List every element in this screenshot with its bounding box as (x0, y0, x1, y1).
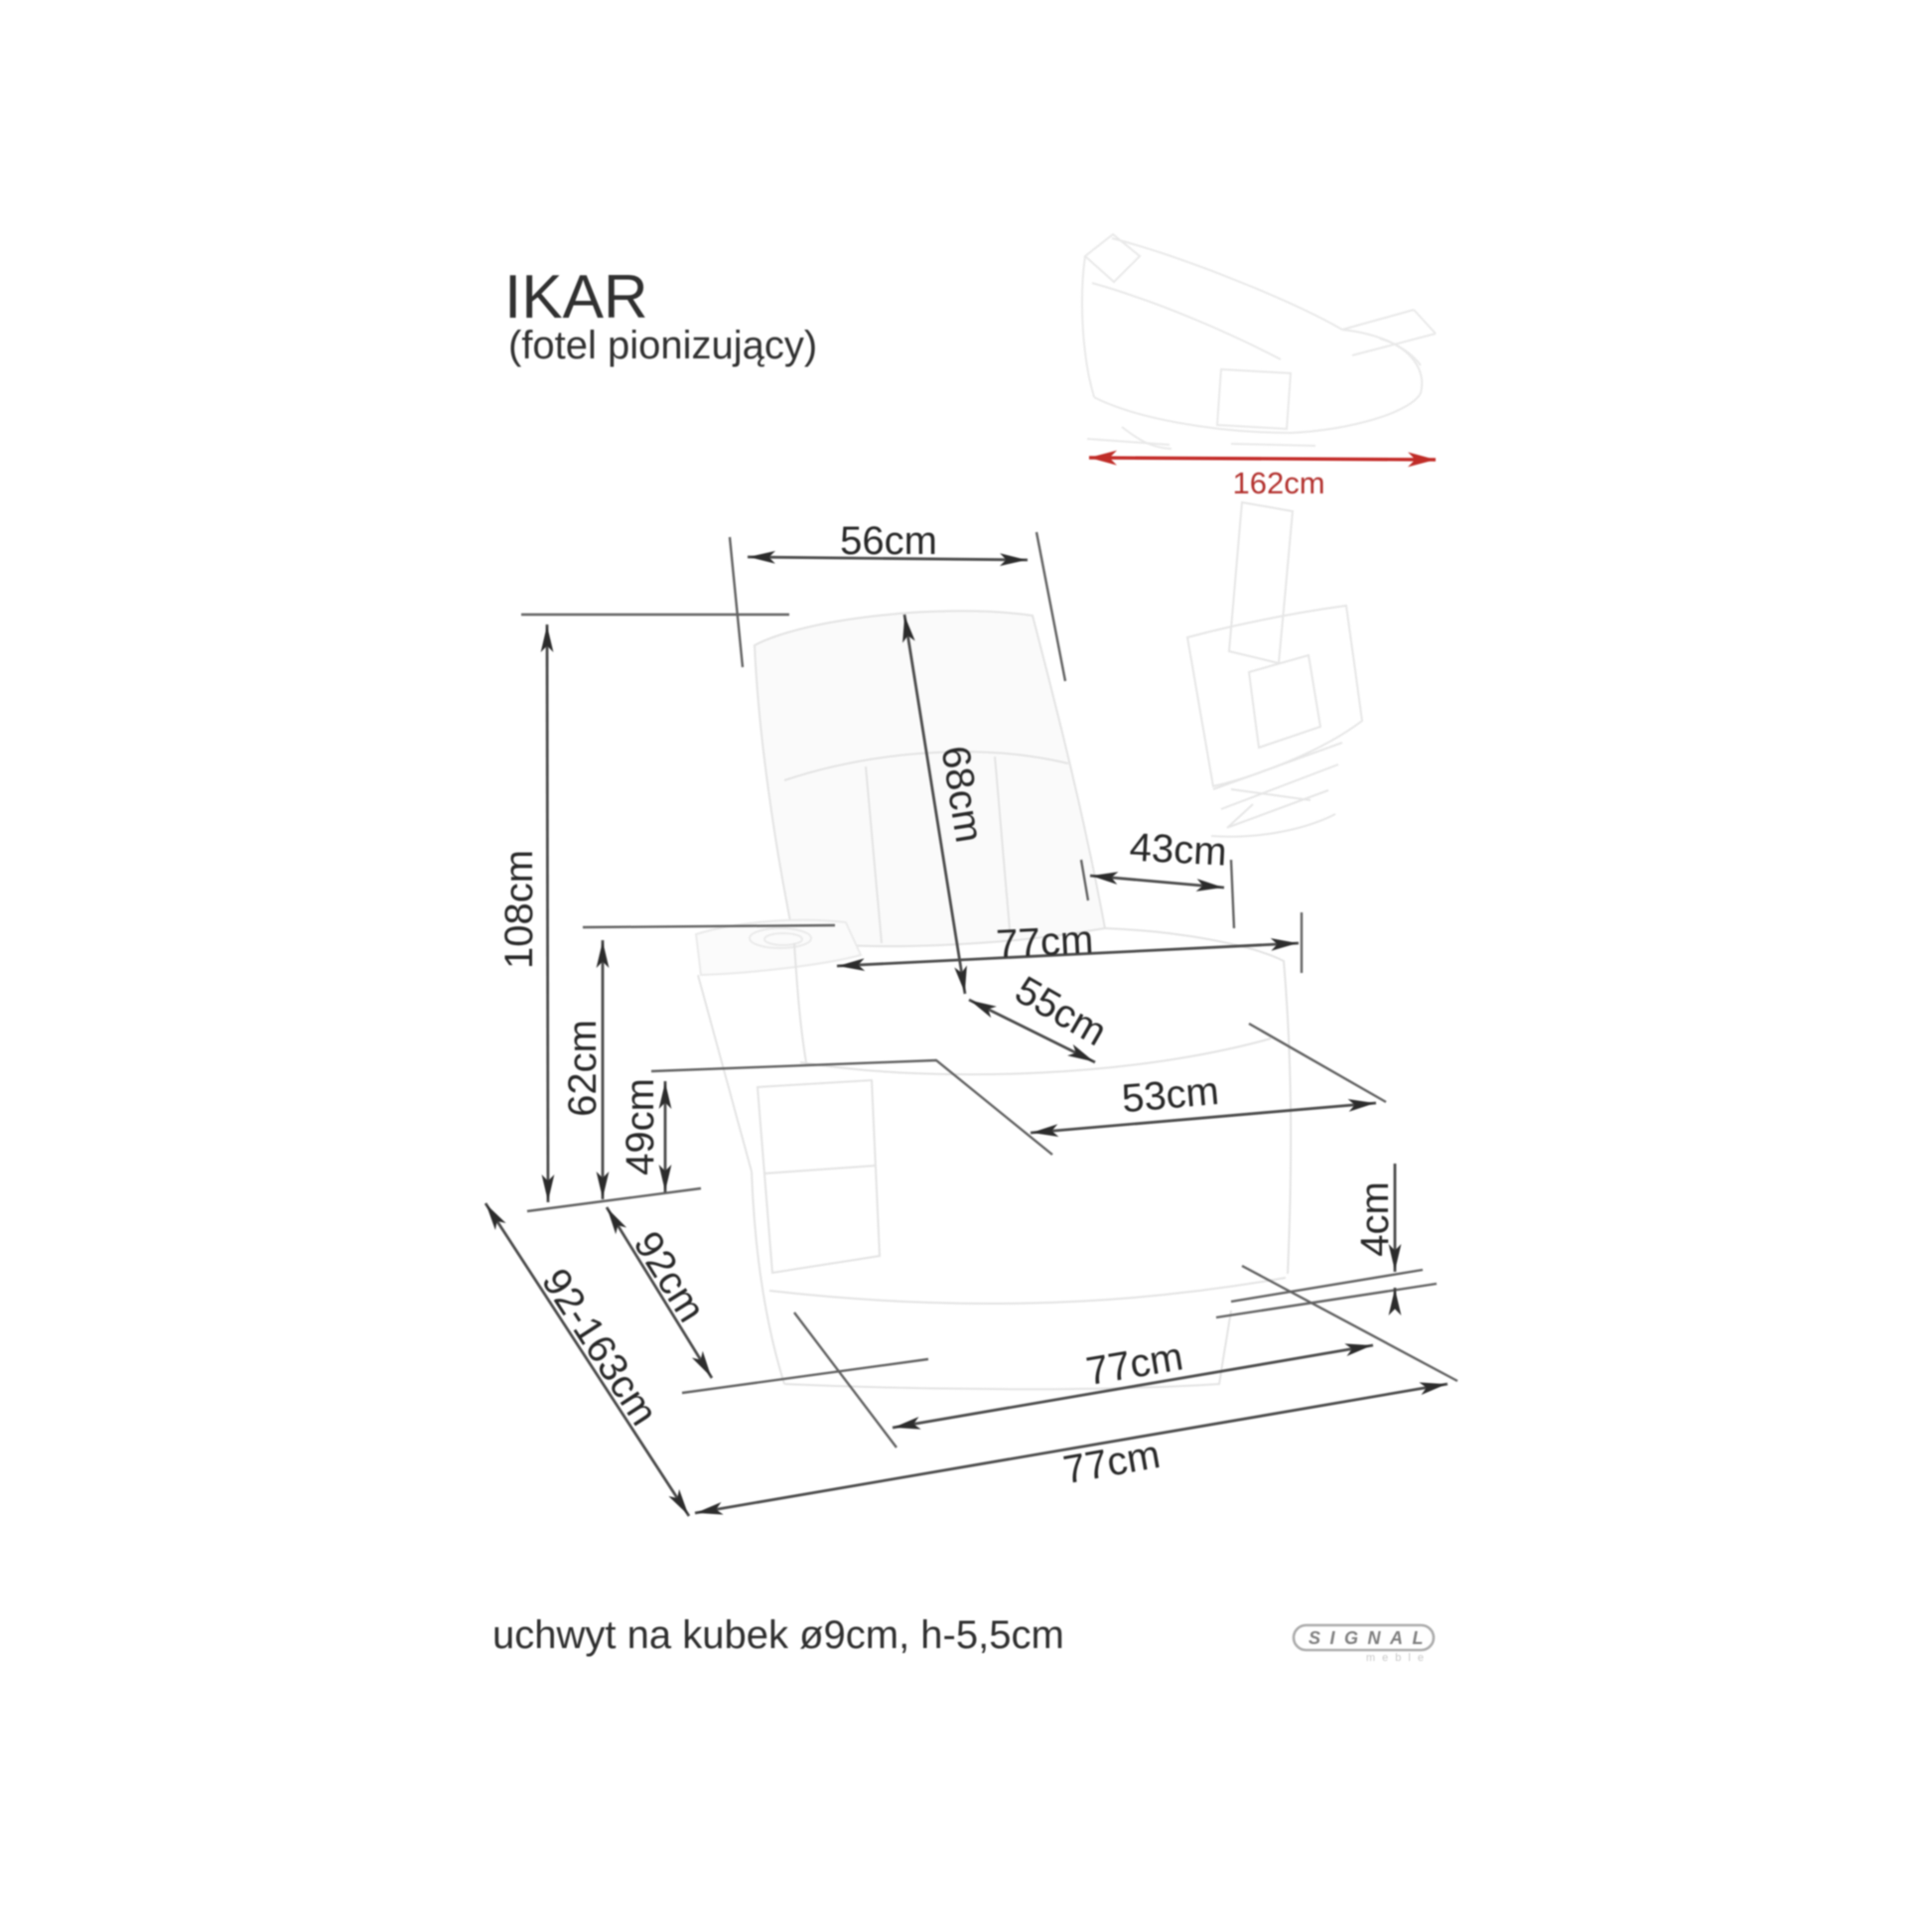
svg-text:56cm: 56cm (840, 519, 937, 563)
svg-text:43cm: 43cm (1129, 825, 1228, 874)
svg-text:162cm: 162cm (1232, 466, 1324, 500)
svg-text:55cm: 55cm (1008, 968, 1114, 1054)
svg-text:SIGNAL: SIGNAL (1309, 1628, 1433, 1648)
svg-text:62cm: 62cm (561, 1020, 605, 1117)
svg-text:92-163cm: 92-163cm (533, 1261, 666, 1433)
svg-text:4cm: 4cm (1353, 1181, 1397, 1257)
svg-text:92cm: 92cm (624, 1224, 713, 1329)
svg-text:(fotel pionizujący): (fotel pionizujący) (508, 324, 817, 367)
svg-text:meble: meble (1366, 1652, 1431, 1664)
svg-text:49cm: 49cm (619, 1078, 662, 1175)
svg-text:53cm: 53cm (1120, 1069, 1220, 1121)
svg-text:IKAR: IKAR (504, 263, 648, 332)
svg-text:77cm: 77cm (1083, 1334, 1186, 1394)
svg-text:uchwyt na kubek ø9cm, h-5,5cm: uchwyt na kubek ø9cm, h-5,5cm (492, 1613, 1064, 1657)
svg-text:108cm: 108cm (497, 850, 541, 969)
svg-text:77cm: 77cm (995, 917, 1094, 966)
svg-text:77cm: 77cm (1060, 1433, 1164, 1492)
